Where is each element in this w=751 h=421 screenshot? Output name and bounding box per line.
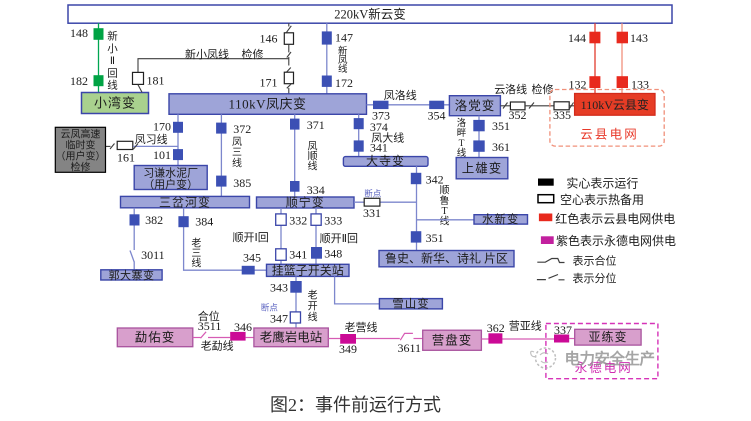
svg-text:空心表示热备用: 空心表示热备用 bbox=[560, 193, 644, 207]
svg-text:实心表示运行: 实心表示运行 bbox=[566, 175, 638, 190]
svg-text:老鹰岩电站: 老鹰岩电站 bbox=[260, 330, 323, 345]
svg-text:顺鲁T线: 顺鲁T线 bbox=[440, 185, 450, 228]
svg-text:云县电网: 云县电网 bbox=[580, 128, 639, 142]
svg-text:341: 341 bbox=[370, 141, 388, 155]
svg-text:洛党变: 洛党变 bbox=[455, 98, 496, 113]
svg-text:170: 170 bbox=[153, 120, 171, 134]
svg-text:335: 335 bbox=[553, 108, 571, 122]
svg-text:新小凤线: 新小凤线 bbox=[185, 47, 229, 61]
svg-text:348: 348 bbox=[324, 247, 342, 261]
svg-text:顺开Ⅰ回: 顺开Ⅰ回 bbox=[233, 231, 269, 244]
svg-text:郭大寨变: 郭大寨变 bbox=[109, 268, 155, 282]
svg-text:110kV云县变: 110kV云县变 bbox=[581, 97, 649, 112]
svg-text:营亚线: 营亚线 bbox=[509, 319, 542, 333]
svg-text:351: 351 bbox=[492, 119, 510, 133]
svg-text:342: 342 bbox=[426, 172, 444, 186]
svg-text:384: 384 bbox=[195, 215, 213, 229]
svg-text:新小Ⅱ回线: 新小Ⅱ回线 bbox=[107, 30, 118, 92]
svg-text:上雄变: 上雄变 bbox=[462, 161, 503, 176]
svg-text:182: 182 bbox=[70, 74, 88, 88]
svg-text:382: 382 bbox=[145, 213, 163, 227]
svg-text:161: 161 bbox=[117, 151, 135, 165]
svg-text:雪山变: 雪山变 bbox=[392, 296, 430, 310]
svg-text:三岔河变: 三岔河变 bbox=[159, 194, 211, 209]
svg-text:3011: 3011 bbox=[141, 248, 165, 262]
svg-text:亚练变: 亚练变 bbox=[588, 329, 627, 344]
svg-text:362: 362 bbox=[487, 321, 505, 335]
svg-text:勐佑变: 勐佑变 bbox=[135, 330, 176, 345]
svg-text:检修: 检修 bbox=[532, 82, 554, 96]
svg-text:337: 337 bbox=[554, 323, 572, 337]
svg-text:营盘变: 营盘变 bbox=[432, 332, 473, 347]
svg-text:电力安全生产: 电力安全生产 bbox=[565, 349, 655, 368]
svg-text:371: 371 bbox=[307, 118, 325, 132]
svg-text:断点: 断点 bbox=[364, 188, 382, 198]
svg-text:表示分位: 表示分位 bbox=[573, 271, 617, 285]
svg-text:顺开Ⅱ回: 顺开Ⅱ回 bbox=[320, 232, 358, 245]
svg-text:349: 349 bbox=[339, 342, 357, 356]
svg-text:表示合位: 表示合位 bbox=[573, 253, 617, 267]
svg-text:图2：事件前运行方式: 图2：事件前运行方式 bbox=[270, 395, 441, 415]
svg-text:红色表示云县电网供电: 红色表示云县电网供电 bbox=[555, 211, 675, 226]
svg-text:144: 144 bbox=[568, 31, 586, 45]
svg-text:347: 347 bbox=[270, 312, 288, 326]
svg-text:333: 333 bbox=[324, 213, 342, 227]
svg-text:171: 171 bbox=[260, 76, 278, 90]
svg-text:343: 343 bbox=[270, 280, 288, 294]
svg-text:110kV凤庆变: 110kV凤庆变 bbox=[229, 97, 307, 112]
svg-text:101: 101 bbox=[153, 148, 171, 162]
svg-text:凤三线: 凤三线 bbox=[232, 136, 242, 169]
svg-text:凤洛线: 凤洛线 bbox=[384, 88, 417, 102]
svg-text:341: 341 bbox=[289, 248, 307, 262]
svg-text:老三线: 老三线 bbox=[191, 237, 201, 270]
svg-text:3511: 3511 bbox=[198, 319, 222, 333]
svg-text:361: 361 bbox=[492, 140, 510, 154]
svg-text:小湾变: 小湾变 bbox=[94, 96, 136, 111]
svg-text:331: 331 bbox=[363, 206, 381, 220]
svg-text:老开线: 老开线 bbox=[308, 289, 318, 324]
svg-text:220kV新云变: 220kV新云变 bbox=[334, 7, 406, 22]
svg-text:346: 346 bbox=[234, 320, 252, 334]
svg-text:云洛线: 云洛线 bbox=[494, 82, 527, 96]
svg-text:3611: 3611 bbox=[398, 341, 422, 355]
svg-text:老勐线: 老勐线 bbox=[201, 339, 234, 353]
svg-text:鲁史、新华、诗礼 片区: 鲁史、新华、诗礼 片区 bbox=[385, 251, 508, 266]
svg-text:332: 332 bbox=[289, 213, 307, 227]
svg-text:习谦水泥厂（用户变）: 习谦水泥厂（用户变） bbox=[143, 167, 198, 192]
svg-text:143: 143 bbox=[630, 31, 648, 45]
svg-text:新凤线: 新凤线 bbox=[338, 45, 348, 75]
svg-text:372: 372 bbox=[233, 122, 251, 136]
svg-text:检修: 检修 bbox=[242, 47, 264, 61]
svg-text:大寺变: 大寺变 bbox=[366, 153, 405, 168]
svg-text:354: 354 bbox=[428, 109, 446, 123]
svg-text:洛畔T线: 洛畔T线 bbox=[457, 117, 467, 159]
svg-text:351: 351 bbox=[426, 231, 444, 245]
svg-text:水新变: 水新变 bbox=[482, 212, 520, 226]
svg-text:181: 181 bbox=[147, 74, 165, 88]
svg-text:凤顺线: 凤顺线 bbox=[308, 141, 318, 173]
svg-text:345: 345 bbox=[243, 250, 261, 264]
svg-text:172: 172 bbox=[335, 76, 353, 90]
svg-text:147: 147 bbox=[335, 31, 353, 45]
svg-text:挂篮子开关站: 挂篮子开关站 bbox=[272, 263, 344, 278]
svg-text:146: 146 bbox=[260, 32, 278, 46]
svg-text:顺宁变: 顺宁变 bbox=[286, 195, 325, 210]
svg-text:148: 148 bbox=[70, 26, 88, 40]
svg-text:385: 385 bbox=[233, 176, 251, 190]
svg-text:凤习线: 凤习线 bbox=[135, 132, 168, 146]
svg-text:老营线: 老营线 bbox=[345, 320, 378, 334]
svg-text:紫色表示永德电网供电: 紫色表示永德电网供电 bbox=[556, 233, 676, 248]
svg-text:352: 352 bbox=[509, 108, 527, 122]
